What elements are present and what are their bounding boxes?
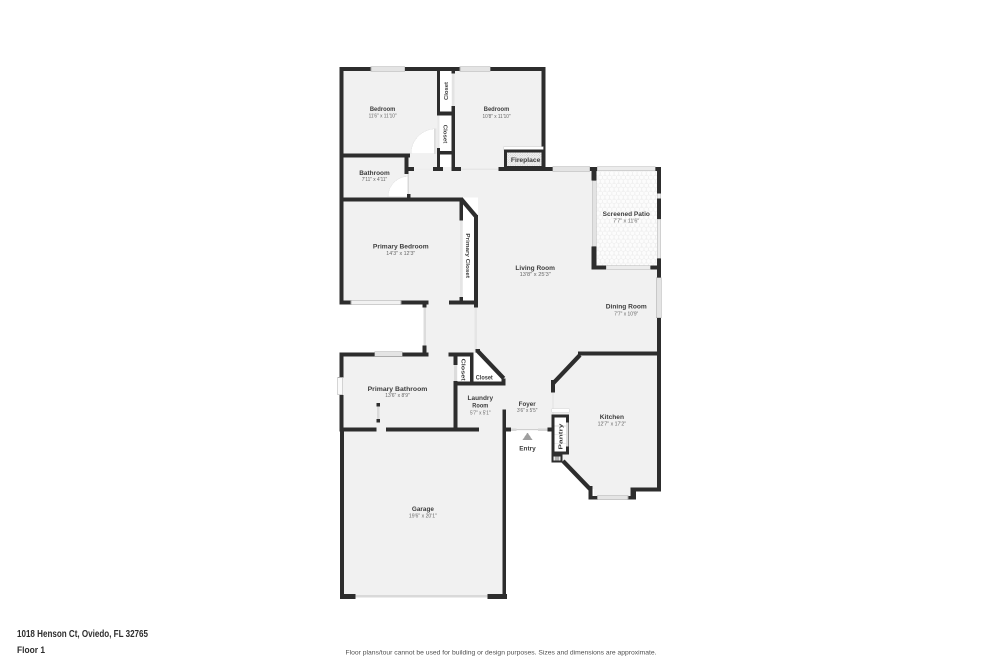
svg-text:13'8" x 25'3": 13'8" x 25'3" [520,272,551,278]
svg-text:14'3" x 12'3": 14'3" x 12'3" [386,251,415,257]
svg-text:7'7" x 11'6": 7'7" x 11'6" [613,219,639,225]
svg-text:7'11" x 4'11": 7'11" x 4'11" [362,177,388,183]
svg-text:Bathroom: Bathroom [359,170,390,177]
svg-text:Primary Bedroom: Primary Bedroom [373,244,429,251]
svg-text:Closet: Closet [444,82,450,100]
svg-text:Dining Room: Dining Room [606,304,647,311]
svg-text:Closet: Closet [459,359,465,381]
svg-text:Primary Bathroom: Primary Bathroom [368,386,428,393]
svg-text:Fireplace: Fireplace [511,157,541,164]
svg-text:Floor plans/tour cannot be use: Floor plans/tour cannot be used for buil… [346,650,657,657]
svg-text:Kitchen: Kitchen [600,414,624,421]
svg-text:11'6" x 11'10": 11'6" x 11'10" [369,114,397,120]
svg-text:12'7" x 17'2": 12'7" x 17'2" [598,422,627,428]
svg-text:Garage: Garage [412,506,434,513]
svg-text:Entry: Entry [519,446,536,453]
svg-text:1018 Henson Ct, Oviedo, FL 327: 1018 Henson Ct, Oviedo, FL 32765 [17,629,149,640]
svg-text:Living Room: Living Room [515,265,555,272]
svg-text:Floor 1: Floor 1 [17,645,46,656]
svg-text:5'7" x 5'1": 5'7" x 5'1" [470,410,491,416]
svg-text:Closet: Closet [441,125,447,144]
svg-text:Primary Closet: Primary Closet [464,233,470,278]
svg-text:3'6" x 5'5": 3'6" x 5'5" [517,408,538,414]
svg-text:Bedroom: Bedroom [484,106,510,113]
svg-text:Bedroom: Bedroom [370,106,396,113]
svg-text:Closet: Closet [476,374,493,381]
svg-text:Room: Room [472,403,488,410]
svg-text:Pantry: Pantry [558,422,564,449]
svg-text:7'7" x 10'9": 7'7" x 10'9" [614,311,638,317]
svg-text:Screened Patio: Screened Patio [603,211,650,218]
svg-text:10'8" x 11'10": 10'8" x 11'10" [483,114,511,120]
svg-text:Laundry: Laundry [468,395,494,402]
svg-text:13'6" x 8'9": 13'6" x 8'9" [385,393,410,399]
svg-text:19'6" x 20'1": 19'6" x 20'1" [409,514,437,520]
